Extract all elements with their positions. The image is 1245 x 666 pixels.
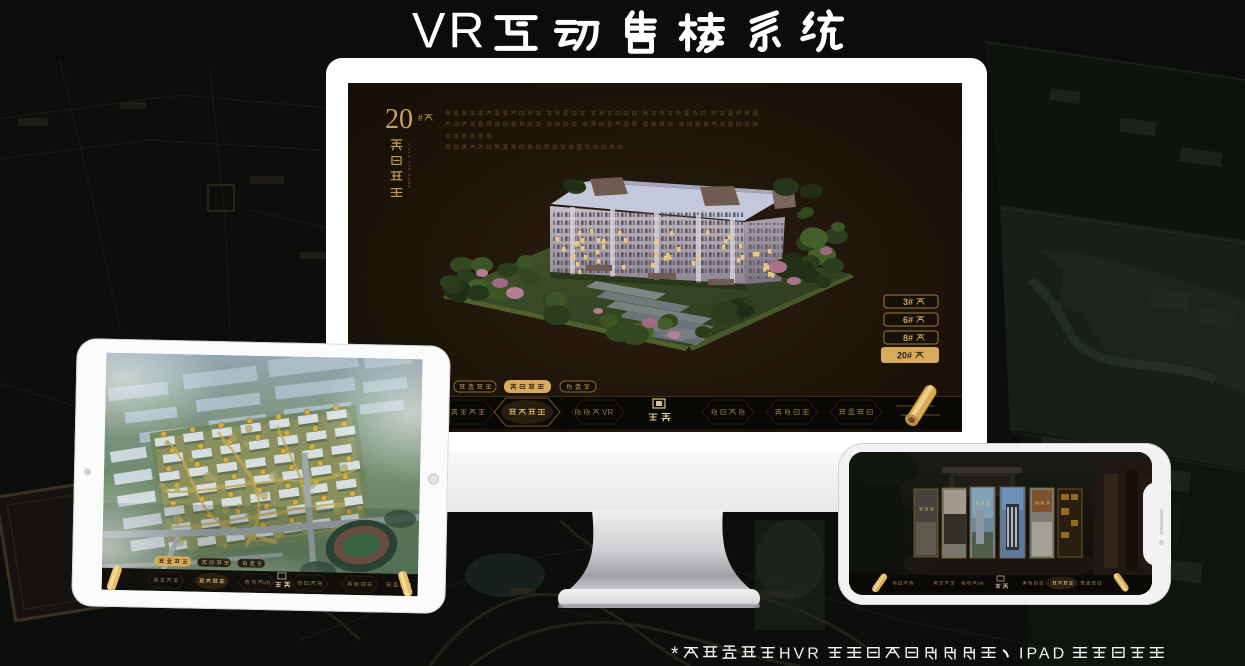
svg-text:*: *	[671, 644, 679, 665]
svg-text:IPAD: IPAD	[1019, 646, 1067, 663]
svg-text:HVR: HVR	[779, 646, 822, 663]
